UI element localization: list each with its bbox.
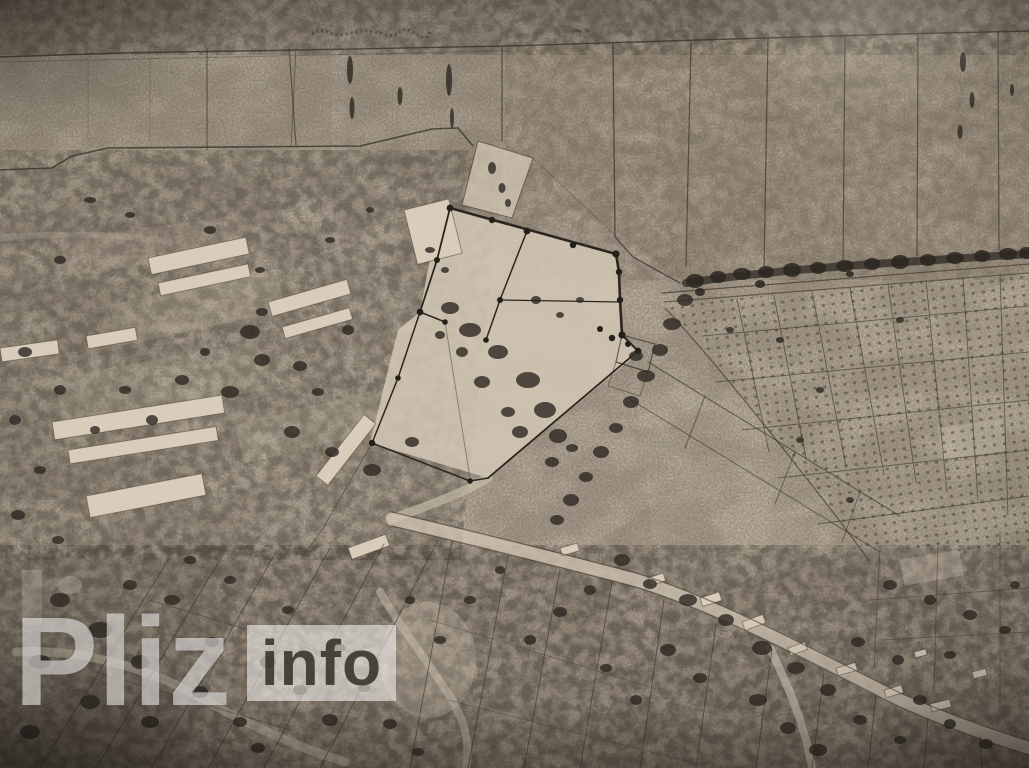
map-photo: Pliz info [0,0,1029,768]
watermark-brand: Pliz [14,599,231,725]
watermark-info-badge: info [247,625,396,701]
